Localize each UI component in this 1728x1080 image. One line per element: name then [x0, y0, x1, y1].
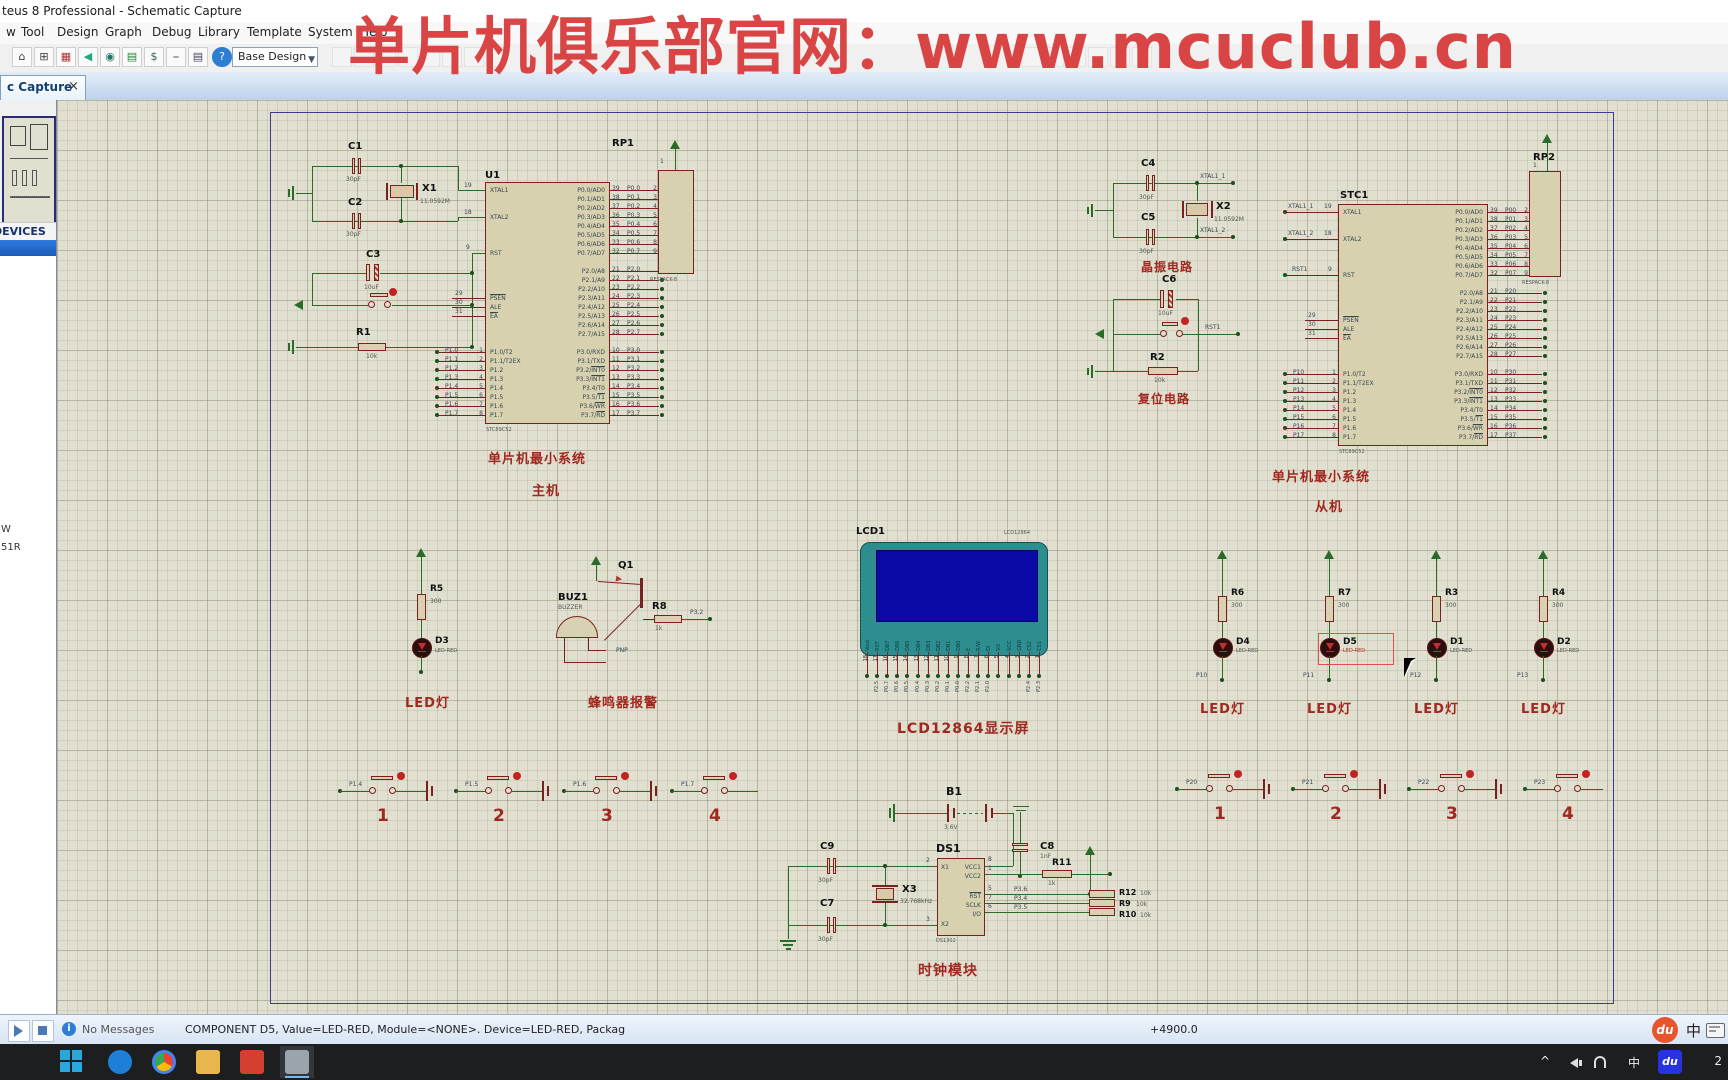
- caption: LED灯: [1307, 698, 1352, 717]
- stc1-p2-stubs: 21P2022P2123P2224P2325P2426P2527P2628P27: [1488, 289, 1545, 361]
- power-arrow: [416, 548, 426, 557]
- taskbar-app-proteus[interactable]: [285, 1050, 309, 1074]
- selection-highlight-d5: [1318, 633, 1394, 665]
- pin-number: 18: [464, 209, 472, 216]
- pin-number: 1: [660, 158, 664, 165]
- goto-sheet-icon[interactable]: ⊞: [34, 47, 54, 67]
- preview-glyph: [30, 124, 48, 150]
- capacitor[interactable]: [827, 858, 830, 874]
- respack-ref[interactable]: RP1: [612, 138, 634, 149]
- caption: LED灯: [1414, 698, 1459, 717]
- device-item[interactable]: W: [1, 524, 11, 535]
- res-value: 1k: [1048, 880, 1055, 887]
- res-ref[interactable]: R4: [1552, 588, 1565, 598]
- led-value: LED-RED: [1557, 648, 1579, 654]
- net-label: P22: [1418, 779, 1429, 786]
- pnp-arrow: [616, 576, 623, 583]
- junction-dot: [1434, 678, 1438, 682]
- u1-p1-stubs: P1.01P1.12P1.23P1.34P1.45P1.56P1.67P1.78: [437, 348, 485, 420]
- res-ref[interactable]: R2: [1150, 352, 1165, 363]
- res-value: 300: [1445, 602, 1456, 609]
- device-item[interactable]: 51R: [1, 542, 21, 553]
- u1-p0-stubs: 39P0.0238P0.1337P0.2436P0.3535P0.4634P0.…: [610, 186, 658, 258]
- preview-glyph: [10, 126, 26, 146]
- no-messages-label: No Messages: [82, 1023, 154, 1036]
- junction-dot: [1283, 237, 1287, 241]
- design-root-combo[interactable]: Base Design▼: [232, 47, 318, 67]
- push-button[interactable]: [595, 776, 617, 780]
- res-ref[interactable]: R3: [1445, 588, 1458, 598]
- capacitor[interactable]: [833, 858, 836, 874]
- tray-chevron-icon[interactable]: ^: [1540, 1054, 1550, 1068]
- taskbar: ^ 中 du 2: [0, 1044, 1728, 1080]
- capacitor[interactable]: [1152, 229, 1155, 245]
- push-button[interactable]: [389, 787, 396, 794]
- capacitor[interactable]: [358, 158, 361, 174]
- res-value: 10k: [366, 353, 377, 360]
- power-arrow: [1542, 134, 1552, 143]
- respack-rp1[interactable]: [658, 170, 694, 274]
- menu-item[interactable]: w: [6, 25, 16, 39]
- led-d3[interactable]: [412, 638, 432, 658]
- push-button[interactable]: [1176, 330, 1183, 337]
- junction-dot: [883, 864, 887, 868]
- cap-ref[interactable]: C1: [348, 141, 362, 152]
- menu-item[interactable]: Library: [198, 25, 240, 39]
- push-button[interactable]: [505, 787, 512, 794]
- button-actuator[interactable]: [397, 772, 405, 780]
- push-button[interactable]: [721, 787, 728, 794]
- power-arrow: [670, 140, 680, 149]
- pin-number: 7: [988, 894, 992, 901]
- button-actuator[interactable]: [1234, 770, 1242, 778]
- cap-ref[interactable]: C6: [1162, 274, 1176, 285]
- respack-rp2[interactable]: [1529, 171, 1561, 277]
- res-ref[interactable]: R8: [652, 601, 667, 612]
- capacitor-polar[interactable]: [374, 264, 379, 281]
- transistor-type: PNP: [616, 647, 628, 654]
- res-value: 300: [1338, 602, 1349, 609]
- push-button[interactable]: [1162, 322, 1178, 326]
- capacitor[interactable]: [352, 158, 355, 174]
- caption: 晶振电路: [1141, 258, 1193, 275]
- junction-dot: [399, 164, 403, 168]
- push-button[interactable]: [369, 787, 376, 794]
- net-label: XTAL1_2: [1288, 230, 1313, 237]
- junction-dot: [1231, 181, 1235, 185]
- push-button[interactable]: [384, 301, 391, 308]
- bom-icon[interactable]: $: [144, 47, 164, 67]
- net-label: P10: [1196, 672, 1207, 679]
- stc1-p1-stubs: P101P112P123P134P145P156P167P178: [1285, 370, 1338, 442]
- buzzer[interactable]: [556, 616, 598, 638]
- net-label: XTAL1_2: [1200, 227, 1225, 234]
- push-button[interactable]: [485, 787, 492, 794]
- push-button[interactable]: [1440, 774, 1462, 778]
- pin-number: 9: [1328, 266, 1332, 273]
- button-actuator[interactable]: [621, 772, 629, 780]
- cap-ref[interactable]: C2: [348, 197, 362, 208]
- crystal-value: 11.0592M: [420, 198, 450, 205]
- resistor[interactable]: [1089, 908, 1115, 916]
- pin-number: 29: [455, 290, 463, 297]
- pin-number: 29: [1308, 312, 1316, 319]
- schematic-canvas[interactable]: C1 30pF C2 30pF X1 11.0592M 19 18: [57, 100, 1728, 1014]
- button-number: 3: [1446, 804, 1458, 824]
- buzzer-part: BUZZER: [558, 604, 583, 611]
- ruler-icon[interactable]: ⎯: [166, 47, 186, 67]
- respack-part: RESPACK-8: [1522, 280, 1549, 286]
- led-ref[interactable]: D2: [1557, 637, 1571, 647]
- led-value: LED-RED: [1450, 648, 1472, 654]
- cap-value: 10uF: [1158, 310, 1173, 317]
- capacitor[interactable]: [366, 264, 370, 281]
- res-value: 10k: [1140, 890, 1151, 897]
- caption: 主机: [532, 480, 560, 499]
- resistor[interactable]: [654, 615, 682, 623]
- mcu-stc1[interactable]: XTAL1XTAL2RSTPSENALEEAP1.0/T2P1.1/T2EXP1…: [1338, 204, 1488, 446]
- buzzer-ref[interactable]: BUZ1: [558, 592, 588, 603]
- push-button[interactable]: [1160, 330, 1167, 337]
- close-icon[interactable]: ×: [68, 79, 79, 94]
- net-label: P1.4: [349, 781, 362, 788]
- status-message: COMPONENT D5, Value=LED-RED, Module=<NON…: [185, 1023, 625, 1036]
- net-label: RST1: [1205, 324, 1220, 331]
- capacitor[interactable]: [352, 213, 355, 229]
- push-button[interactable]: [1574, 785, 1581, 792]
- pin-number: 30: [1308, 321, 1316, 328]
- power-arrow: [1431, 550, 1441, 559]
- resistor[interactable]: [1042, 870, 1072, 878]
- world-icon[interactable]: ◉: [100, 47, 120, 67]
- push-button[interactable]: [1322, 785, 1329, 792]
- button-actuator[interactable]: [1350, 770, 1358, 778]
- led-d2[interactable]: [1534, 638, 1554, 658]
- capacitor[interactable]: [1012, 843, 1028, 846]
- res-ref[interactable]: R7: [1338, 588, 1351, 598]
- cap-value: 1nF: [1040, 853, 1051, 860]
- capacitor[interactable]: [1146, 229, 1149, 245]
- taskbar-app-edge[interactable]: [108, 1050, 132, 1074]
- cap-value: 30pF: [346, 231, 361, 238]
- preview-glyph: [12, 170, 17, 186]
- net-label: P3.5: [1014, 904, 1027, 911]
- network-icon[interactable]: [1594, 1056, 1606, 1068]
- crystal-ref[interactable]: X2: [1216, 201, 1231, 212]
- stc1-p3-stubs: 10P3011P3112P3213P3314P3415P3516P3617P37: [1488, 370, 1545, 442]
- push-button[interactable]: [1208, 774, 1230, 778]
- net-label: RST1: [1292, 266, 1307, 273]
- capacitor[interactable]: [1152, 175, 1155, 191]
- crystal-ref[interactable]: X3: [902, 884, 917, 895]
- push-button[interactable]: [1556, 774, 1578, 778]
- push-button[interactable]: [1324, 774, 1346, 778]
- button-number: 4: [1562, 804, 1574, 824]
- menu-item[interactable]: Tool: [21, 25, 44, 39]
- preview-glyph: [22, 170, 27, 186]
- taskbar-app-red[interactable]: [240, 1050, 264, 1074]
- caption: 时钟模块: [918, 960, 978, 980]
- speaker-icon[interactable]: [1570, 1058, 1578, 1068]
- caption: 从机: [1315, 496, 1343, 515]
- res-ref[interactable]: R11: [1052, 858, 1071, 868]
- watermark-text: 单片机俱乐部官网：www.mcuclub.cn: [348, 0, 1517, 86]
- junction-dot: [399, 219, 403, 223]
- push-button[interactable]: [701, 787, 708, 794]
- tab-label: c Capture: [7, 80, 72, 94]
- push-button[interactable]: [1438, 785, 1445, 792]
- push-button[interactable]: [1458, 785, 1465, 792]
- led-ref[interactable]: D3: [435, 636, 449, 646]
- schematic-preview[interactable]: [2, 116, 56, 224]
- junction-dot: [1327, 678, 1331, 682]
- ds1302-chip[interactable]: X1 X2 VCC1 VCC2 RST SCLK I/O: [937, 858, 985, 936]
- tab-schematic-capture[interactable]: c Capture ×: [0, 75, 86, 101]
- button-number: 3: [601, 806, 613, 826]
- junction-dot: [1283, 273, 1287, 277]
- caption: LCD12864显示屏: [897, 718, 1030, 738]
- push-button[interactable]: [593, 787, 600, 794]
- button-actuator[interactable]: [513, 772, 521, 780]
- resistor[interactable]: [1089, 890, 1115, 898]
- tray-lang-indicator[interactable]: 中: [1628, 1054, 1640, 1071]
- resistor[interactable]: [1539, 596, 1548, 622]
- net-label: P13: [1517, 672, 1528, 679]
- junction-dot: [1195, 181, 1199, 185]
- device-list[interactable]: W 51R: [0, 256, 56, 1014]
- preview-glyph: [10, 158, 48, 159]
- devices-header: DEVICES: [0, 222, 56, 241]
- resistor[interactable]: [1432, 596, 1441, 622]
- caption: LED灯: [405, 692, 450, 711]
- res-value: 1k: [655, 625, 662, 632]
- net-label: P21: [1302, 779, 1313, 786]
- push-button[interactable]: [613, 787, 620, 794]
- res-value: 300: [1552, 602, 1563, 609]
- res-ref[interactable]: R6: [1231, 588, 1244, 598]
- capacitor[interactable]: [827, 917, 830, 933]
- crystal[interactable]: [1186, 203, 1208, 216]
- push-button[interactable]: [1342, 785, 1349, 792]
- caption: 复位电路: [1138, 390, 1190, 407]
- net-label: P1.7: [681, 781, 694, 788]
- capacitor[interactable]: [1146, 175, 1149, 191]
- cap-ref[interactable]: C8: [1040, 841, 1054, 852]
- start-button[interactable]: [60, 1050, 84, 1074]
- menu-item[interactable]: Template: [247, 25, 302, 39]
- res-value: 10k: [1136, 901, 1147, 908]
- resistor[interactable]: [1325, 596, 1334, 622]
- res-value: 10k: [1140, 912, 1151, 919]
- chip-part: DS1302: [936, 938, 956, 944]
- button-number: 2: [493, 806, 505, 826]
- junction-dot: [1108, 872, 1112, 876]
- net-label: XTAL1_1: [1200, 173, 1225, 180]
- baidu-tray-badge[interactable]: du: [1658, 1050, 1682, 1074]
- caption: LED灯: [1521, 698, 1566, 717]
- left-sidebar: DEVICES W 51R: [0, 100, 56, 1014]
- led-ref[interactable]: D4: [1236, 637, 1250, 647]
- chip-ref[interactable]: STC1: [1340, 190, 1368, 201]
- mouse-cursor: [1404, 658, 1416, 677]
- res-value: 10k: [1154, 377, 1165, 384]
- window-title: teus 8 Professional - Schematic Capture: [2, 4, 242, 18]
- menu-item[interactable]: System: [308, 25, 353, 39]
- chip-part: STC89C52: [1339, 449, 1365, 455]
- push-button[interactable]: [370, 293, 388, 297]
- home-icon[interactable]: ⌂: [12, 47, 32, 67]
- chip-ref[interactable]: U1: [485, 170, 500, 181]
- preview-glyph: [10, 196, 50, 198]
- res-ref[interactable]: R5: [430, 584, 443, 594]
- junction-dot: [419, 670, 423, 674]
- speaker-icon[interactable]: ◀: [78, 47, 98, 67]
- resistor[interactable]: [358, 343, 386, 351]
- button-actuator[interactable]: [389, 288, 397, 296]
- pin-number: 19: [1324, 203, 1332, 210]
- play-button[interactable]: [8, 1020, 30, 1042]
- junction-dot: [1236, 332, 1240, 336]
- pin-number: 9: [466, 244, 470, 251]
- junction-dot: [1283, 210, 1287, 214]
- led-value: LED-RED: [435, 648, 457, 654]
- button-actuator[interactable]: [1582, 770, 1590, 778]
- chip-ref[interactable]: DS1: [936, 842, 961, 855]
- push-button[interactable]: [1206, 785, 1213, 792]
- cap-value: 30pF: [1139, 248, 1154, 255]
- push-button[interactable]: [371, 776, 393, 780]
- res-ref[interactable]: R1: [356, 327, 371, 338]
- res-value: 300: [1231, 602, 1242, 609]
- caption: 单片机最小系统: [1272, 466, 1370, 485]
- lcd-pins: Vout18RST17P2.5DB716P0.7DB615P0.6DB514P0…: [863, 624, 1045, 708]
- push-button[interactable]: [1554, 785, 1561, 792]
- led-d4[interactable]: [1213, 638, 1233, 658]
- cursor-coordinates: +4900.0: [1150, 1023, 1198, 1036]
- net-label: P1.6: [573, 781, 586, 788]
- chevron-down-icon: ▼: [308, 51, 315, 69]
- baidu-badge[interactable]: du: [1652, 1017, 1678, 1043]
- ime-indicator[interactable]: 中: [1686, 1020, 1701, 1041]
- cap-value: 30pF: [1139, 194, 1154, 201]
- taskbar-app-folder[interactable]: [196, 1050, 220, 1074]
- net-label: P1.5: [465, 781, 478, 788]
- button-actuator[interactable]: [729, 772, 737, 780]
- button-actuator[interactable]: [1181, 317, 1189, 325]
- crystal-ref[interactable]: X1: [422, 183, 437, 194]
- caption: 蜂鸣器报警: [588, 692, 658, 711]
- capacitor[interactable]: [1160, 290, 1164, 308]
- button-number: 4: [709, 806, 721, 826]
- menu-item[interactable]: Graph: [105, 25, 142, 39]
- pin-number: 2: [926, 857, 930, 864]
- push-button[interactable]: [703, 776, 725, 780]
- device-selected-row[interactable]: [0, 240, 56, 256]
- transistor-ref[interactable]: Q1: [618, 560, 633, 571]
- cap-value: 30pF: [346, 176, 361, 183]
- keyboard-icon[interactable]: [1706, 1023, 1725, 1038]
- cap-ref[interactable]: C3: [366, 249, 380, 260]
- help-icon[interactable]: ?: [212, 47, 232, 67]
- res-ref[interactable]: R10: [1119, 910, 1136, 919]
- stop-button[interactable]: [32, 1020, 54, 1042]
- junction-dot: [1195, 235, 1199, 239]
- sheet-icon[interactable]: ▤: [122, 47, 142, 67]
- power-arrow: [591, 556, 601, 565]
- cap-ref[interactable]: C4: [1141, 158, 1155, 169]
- crystal-value: 32.768kHz: [900, 898, 932, 905]
- led-ref[interactable]: D1: [1450, 637, 1464, 647]
- menu-item[interactable]: Design: [57, 25, 98, 39]
- status-bar: i No Messages COMPONENT D5, Value=LED-RE…: [0, 1014, 1728, 1045]
- chip-part: STC89C52: [486, 427, 512, 433]
- pin-number: 30: [455, 299, 463, 306]
- capacitor-polar[interactable]: [1168, 290, 1173, 308]
- taskbar-app-chrome[interactable]: [152, 1050, 176, 1074]
- led-value: LED-RED: [1236, 648, 1258, 654]
- notes-icon[interactable]: ▤: [188, 47, 208, 67]
- proteus-window: teus 8 Professional - Schematic Capture …: [0, 0, 1728, 1080]
- active-app-underline: [285, 1076, 309, 1078]
- caption: 单片机最小系统: [488, 448, 586, 467]
- res-ref[interactable]: R12: [1119, 888, 1136, 897]
- taskbar-clock[interactable]: 2: [1714, 1054, 1722, 1068]
- speaker-icon-body: [1579, 1060, 1582, 1066]
- button-actuator[interactable]: [1466, 770, 1474, 778]
- pin-number: 19: [464, 182, 472, 189]
- info-icon: i: [62, 1022, 76, 1036]
- battery-value: 3.6V: [944, 824, 958, 831]
- net-label: P11: [1303, 672, 1314, 679]
- resistor[interactable]: [1089, 899, 1115, 907]
- led-d1[interactable]: [1427, 638, 1447, 658]
- res-ref[interactable]: R9: [1119, 899, 1131, 908]
- net-label: P3.2: [690, 609, 703, 616]
- lcd-ref[interactable]: LCD1: [856, 526, 885, 537]
- push-button[interactable]: [1226, 785, 1233, 792]
- pin-number: 1: [1533, 162, 1537, 169]
- resistor[interactable]: [417, 594, 426, 620]
- button-number: 2: [1330, 804, 1342, 824]
- cap-ref[interactable]: C5: [1141, 212, 1155, 223]
- cap-ref[interactable]: C7: [820, 898, 834, 909]
- lcd-part: LCD12864: [1004, 530, 1030, 536]
- menu-item[interactable]: Debug: [152, 25, 191, 39]
- crystal[interactable]: [390, 185, 414, 198]
- cap-value: 30pF: [818, 877, 833, 884]
- crystal[interactable]: [876, 888, 894, 900]
- ic-icon[interactable]: ▦: [56, 47, 76, 67]
- power-arrow-left: [1095, 329, 1104, 339]
- push-button[interactable]: [487, 776, 509, 780]
- capacitor[interactable]: [833, 917, 836, 933]
- pin-number: 3: [926, 916, 930, 923]
- power-arrow: [1085, 846, 1095, 855]
- net-label: P3.6: [1014, 886, 1027, 893]
- net-label: P20: [1186, 779, 1197, 786]
- battery-ref[interactable]: B1: [946, 785, 962, 798]
- push-button[interactable]: [368, 301, 375, 308]
- junction-dot: [1231, 235, 1235, 239]
- button-number: 1: [1214, 804, 1226, 824]
- cap-ref[interactable]: C9: [820, 841, 834, 852]
- junction-dot: [708, 617, 712, 621]
- resistor[interactable]: [1148, 367, 1178, 375]
- resistor[interactable]: [1218, 596, 1227, 622]
- capacitor[interactable]: [358, 213, 361, 229]
- mcu-u1[interactable]: XTAL1XTAL2RSTPSENALEEAP1.0/T2P1.1/T2EXP1…: [485, 182, 610, 424]
- power-arrow-left: [294, 300, 303, 310]
